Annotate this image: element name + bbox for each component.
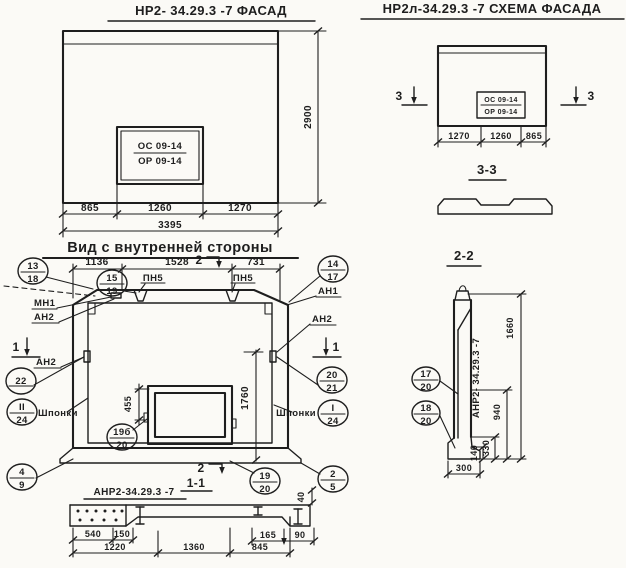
facade-stamp-top: ОС 09-14: [138, 141, 183, 152]
svg-text:17: 17: [327, 272, 338, 283]
svg-text:20: 20: [420, 382, 431, 393]
inner-dim-1528: 1528: [165, 257, 189, 268]
section-2-2-label: АНР2- 34.29.3 -7: [471, 338, 482, 418]
dim-300: 300: [456, 463, 472, 473]
scheme-stamp-top: ОС 09-14: [484, 97, 518, 104]
label-pn5-2: ПН5: [233, 273, 253, 284]
dim-90: 90: [295, 530, 306, 540]
svg-text:19б: 19б: [113, 427, 131, 438]
svg-text:19: 19: [106, 286, 117, 297]
label-keys-right: Шпонки: [276, 408, 316, 419]
callout-2-5: 2 5: [301, 463, 348, 493]
scheme-dim-865: 865: [526, 131, 542, 141]
dim-1220: 1220: [104, 542, 126, 552]
svg-text:9: 9: [19, 480, 25, 491]
facade-dim-865: 865: [81, 203, 99, 214]
scheme-dim-1260: 1260: [490, 131, 512, 141]
section-3-3-title: 3-3: [477, 162, 497, 177]
inner-dim-1136: 1136: [85, 257, 108, 268]
callout-18-20: 18 20: [412, 401, 455, 448]
svg-text:15: 15: [106, 273, 118, 284]
svg-text:17: 17: [420, 369, 431, 380]
facade-dim-1260: 1260: [148, 203, 172, 214]
svg-text:21: 21: [326, 383, 338, 394]
section-2-2: 2-2 АНР2- 34.29.3 -7 1660 940 330 140: [412, 248, 526, 478]
inner-view-drawing: Вид с внутренней стороны 1136 1528 731 2: [4, 240, 348, 495]
callout-19b-20: 19б 20: [107, 419, 147, 451]
inner-dim-455: 455: [123, 396, 133, 412]
svg-text:4: 4: [19, 467, 25, 478]
svg-text:2: 2: [330, 469, 336, 480]
scheme-title: НР2л-34.29.3 -7 СХЕМА ФАСАДА: [383, 1, 602, 16]
section-1-1-title: 1-1: [187, 476, 206, 490]
svg-text:18: 18: [420, 403, 431, 414]
svg-text:13: 13: [27, 261, 38, 272]
callout-15-19: 15 19: [97, 270, 136, 297]
callout-17-20: 17 20: [412, 367, 458, 394]
facade-stamp-bottom: ОР 09-14: [138, 156, 182, 167]
label-an1: АН1: [318, 286, 339, 297]
svg-text:1: 1: [12, 340, 19, 354]
section-2-2-title: 2-2: [454, 248, 474, 263]
section-3-marker-left: 3: [395, 87, 427, 105]
dim-150: 150: [114, 529, 130, 539]
svg-text:2: 2: [195, 253, 202, 267]
dim-845: 845: [252, 542, 268, 552]
label-keys-left: Шпонки: [38, 408, 78, 419]
embed-an2-right: [270, 351, 276, 362]
svg-text:5: 5: [330, 482, 336, 493]
callout-1-24: I 24: [318, 400, 348, 427]
section-3-3: 3-3: [438, 162, 552, 214]
inner-view-title: Вид с внутренней стороны: [67, 240, 272, 256]
facade-dim-1270: 1270: [228, 203, 252, 214]
section-1-marker-right: 1: [313, 338, 341, 357]
drawing-sheet: НР2- 34.29.3 -7 ФАСАД ОС 09-14 ОР 09-14 …: [0, 0, 626, 568]
anchor-marks: [136, 507, 302, 524]
svg-text:3: 3: [395, 89, 402, 103]
callout-19-20: 19 20: [230, 461, 280, 495]
section-1-1: 1-1 АНР2-34.29.3 -7 40 540: [69, 476, 318, 557]
section-1-1-label: АНР2-34.29.3 -7: [93, 487, 174, 498]
callout-4-9: 4 9: [7, 459, 73, 491]
label-an2-left: АН2: [36, 357, 56, 368]
svg-text:2: 2: [197, 461, 204, 475]
svg-text:1: 1: [332, 340, 339, 354]
label-mn1: МН1: [34, 298, 56, 309]
inner-dim-731: 731: [247, 257, 265, 268]
scheme-dim-1270: 1270: [448, 131, 470, 141]
label-an2-topleft: АН2: [34, 312, 54, 323]
callout-13-18: 13 18: [18, 258, 93, 289]
dim-140: 140: [469, 445, 479, 461]
embed-an2-left: [84, 351, 90, 362]
svg-text:24: 24: [16, 415, 28, 426]
scheme-drawing: НР2л-34.29.3 -7 СХЕМА ФАСАДА ОС 09-14 ОР…: [361, 1, 624, 147]
dim-40: 40: [296, 492, 306, 503]
svg-text:14: 14: [327, 259, 339, 270]
label-pn5-1: ПН5: [143, 273, 163, 284]
svg-text:20: 20: [420, 416, 431, 427]
svg-text:20: 20: [259, 484, 270, 495]
drawing-canvas: НР2- 34.29.3 -7 ФАСАД ОС 09-14 ОР 09-14 …: [0, 0, 626, 568]
svg-text:3: 3: [587, 89, 594, 103]
svg-text:20: 20: [116, 440, 127, 451]
section-1-marker-left: 1: [12, 338, 40, 357]
svg-text:24: 24: [327, 416, 339, 427]
dim-165: 165: [260, 530, 276, 540]
svg-text:22: 22: [15, 376, 26, 387]
svg-text:II: II: [19, 402, 25, 413]
dim-1660: 1660: [505, 317, 515, 339]
window-opening: [148, 386, 232, 444]
dim-1360: 1360: [183, 542, 205, 552]
facade-dim-2900: 2900: [303, 105, 314, 129]
svg-text:20: 20: [326, 370, 337, 381]
facade-drawing: НР2- 34.29.3 -7 ФАСАД ОС 09-14 ОР 09-14 …: [59, 3, 326, 237]
svg-text:I: I: [331, 403, 334, 414]
svg-text:19: 19: [259, 471, 270, 482]
dim-940: 940: [492, 404, 502, 420]
dim-540: 540: [85, 529, 101, 539]
inner-dim-1760: 1760: [240, 386, 251, 410]
facade-title: НР2- 34.29.3 -7 ФАСАД: [135, 3, 287, 18]
svg-text:18: 18: [27, 274, 38, 285]
facade-dim-3395: 3395: [158, 220, 182, 231]
scheme-stamp-bottom: ОР 09-14: [484, 109, 517, 116]
rebar-dots: [77, 510, 124, 522]
section-3-marker-right: 3: [561, 87, 595, 105]
callout-11-24: II 24: [7, 399, 37, 426]
label-an2-right: АН2: [312, 314, 332, 325]
